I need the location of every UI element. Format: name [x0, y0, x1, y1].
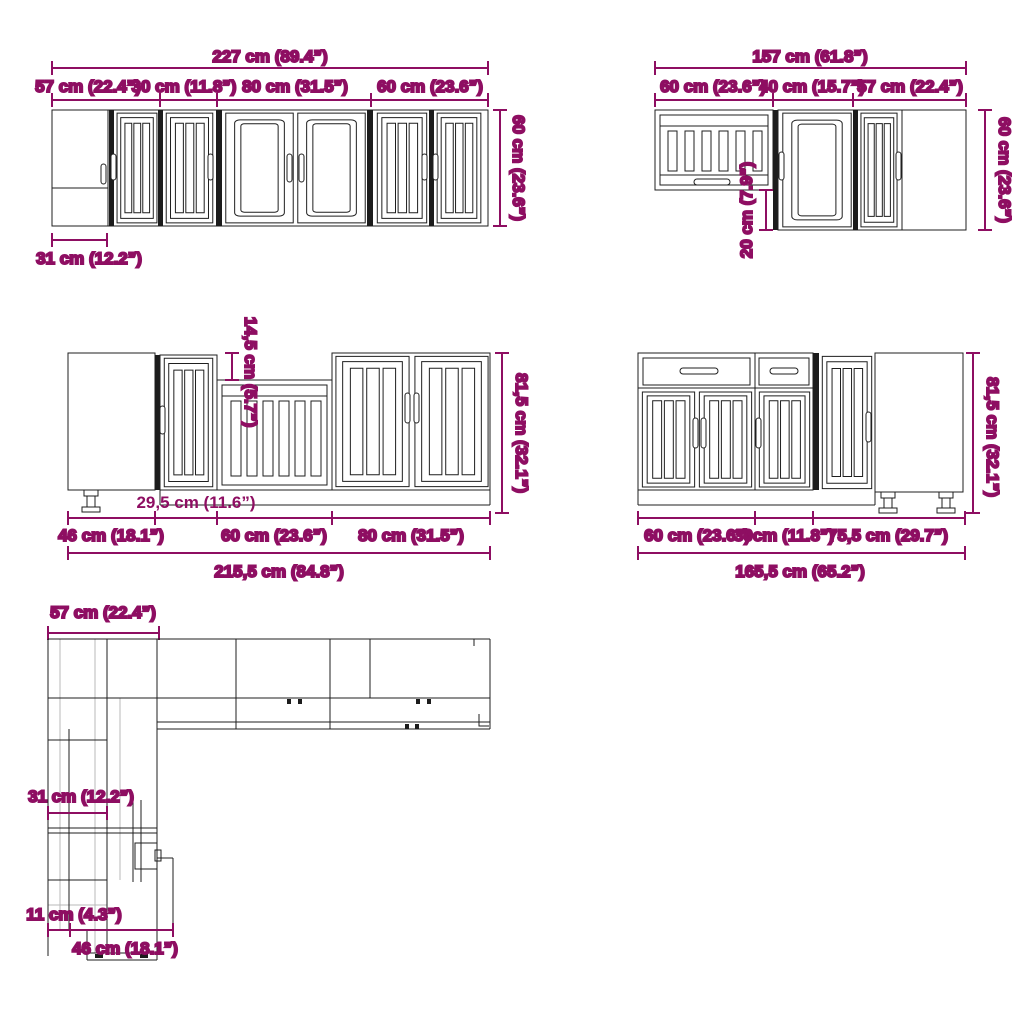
base-run-left-cabinets [68, 353, 490, 512]
dimension-label: 30cm (11.8”) [734, 526, 834, 545]
cabinet-door [298, 113, 365, 223]
drawer-handle [680, 368, 718, 374]
cabinet-leg [879, 492, 897, 513]
dimension-label: 80 cm (31.5”) [242, 77, 348, 96]
dimension-label: 215,5 cm (84.8”) [214, 562, 343, 581]
dimension-label: 46 cm (18.1”) [58, 526, 164, 545]
base-run-right-cabinets [638, 353, 963, 513]
base-run-left-total-dimension: 215,5 cm (84.8”) [68, 546, 490, 581]
door-handle [701, 418, 706, 448]
wall-run-right-height-dimension: 60 cm (23.6”) [978, 110, 1014, 230]
wall-run-left-cabinets [52, 110, 488, 226]
dimension-label: 40 cm (15.7”) [759, 77, 865, 96]
cabinet-door [642, 392, 694, 487]
dimension-label: 80 cm (31.5”) [358, 526, 464, 545]
base-run-left: 14,5 cm (5.7”) 29,5 cm (11.6”) 46 cm (18… [58, 317, 531, 581]
cabinet-door [437, 113, 481, 223]
drawer-handle [770, 368, 798, 374]
door-stile [813, 353, 819, 490]
cabinet-door [861, 113, 897, 227]
door-handle [693, 418, 698, 448]
wall-run-right-total-dimension: 157 cm (61.8”) [655, 47, 966, 75]
dimension-label: 30 cm (11.8”) [132, 77, 237, 96]
door-handle [111, 154, 116, 180]
dimension-label: 165,5 cm (65.2”) [735, 562, 864, 581]
plan-view: 57 cm (22.4”) [26, 603, 490, 960]
filler-panel [773, 110, 778, 230]
base-run-right-total-dimension: 165,5 cm (65.2”) [638, 546, 965, 581]
door-handle [779, 152, 784, 180]
plan-view-bottom-dimensions: 11 cm (4.3”) 46 cm (18.1”) [26, 905, 178, 958]
cabinet-leg [937, 492, 955, 513]
dimension-label: 227 cm (89.4”) [212, 47, 327, 66]
wall-run-left-depth-dimension: 31 cm (12.2”) [36, 233, 142, 268]
dimension-label: 60 cm (23.6”) [509, 115, 528, 221]
kitchen-cabinet-dimension-sheet: 227 cm (89.4”) 57 cm (22.4”) 30 cm (11.8… [0, 0, 1024, 1024]
dimension-label: 11 cm (4.3”) [26, 905, 121, 924]
dimension-label: 57 cm (22.4”) [857, 77, 963, 96]
cabinet-door [783, 113, 851, 227]
cabinet-door [166, 113, 213, 223]
dimension-label: 57 cm (22.4”) [50, 603, 156, 622]
base-run-right-segment-dimensions: 60 cm (23.6”) 30cm (11.8”) 75,5 cm (29.7… [638, 511, 965, 545]
dimension-label: 60 cm (23.6”) [377, 77, 483, 96]
cabinet-door [117, 113, 157, 223]
wall-run-left: 227 cm (89.4”) 57 cm (22.4”) 30 cm (11.8… [35, 47, 528, 268]
door-handle [433, 154, 438, 180]
dimension-label: 60 cm (23.6”) [221, 526, 327, 545]
dimension-label: 81,5 cm (32.1”) [983, 377, 1002, 497]
wall-run-right: 157 cm (61.8”) 60 cm (23.6”) 40 cm (15.7… [655, 47, 1014, 258]
plan-view-depth-dimension: 31 cm (12.2”) [28, 787, 134, 820]
door-handle [299, 154, 304, 182]
plan-view-wall-width-dimension: 57 cm (22.4”) [48, 603, 159, 640]
cabinet-door [699, 392, 751, 487]
door-handle [208, 154, 213, 180]
door-stile [853, 110, 858, 230]
door-handle [414, 393, 419, 423]
cabinet-door [336, 356, 409, 486]
dimension-label: 157 cm (61.8”) [752, 47, 867, 66]
base-run-left-height-dimension: 81,5 cm (32.1”) [495, 353, 531, 513]
wall-run-left-total-dimension: 227 cm (89.4”) [52, 47, 488, 75]
dimension-label: 31 cm (12.2”) [28, 787, 134, 806]
door-handle [866, 412, 871, 442]
sink-unit-width-label: 29,5 cm (11.6”) [136, 493, 255, 512]
door-handle [756, 418, 761, 448]
door-handle [422, 154, 427, 180]
base-run-right-height-dimension: 81,5 cm (32.1”) [966, 353, 1002, 513]
base-run-right: 60 cm (23.6”) 30cm (11.8”) 75,5 cm (29.7… [638, 353, 1002, 581]
door-handle [896, 152, 901, 180]
door-handle [160, 406, 165, 434]
dimension-label: 60 cm (23.6”) [995, 117, 1014, 223]
door-stile [155, 355, 160, 490]
dimension-label: 75,5 cm (29.7”) [828, 526, 948, 545]
dimension-label: 46 cm (18.1”) [72, 939, 178, 958]
wall-run-left-height-dimension: 60 cm (23.6”) [493, 110, 528, 226]
door-stile [367, 110, 373, 226]
wall-run-right-segment-dimensions: 60 cm (23.6”) 40 cm (15.7”) 57 cm (22.4”… [655, 77, 966, 107]
door-stile [216, 110, 222, 226]
door-handle [101, 164, 106, 184]
cabinet-door [164, 358, 212, 486]
cabinet-door [822, 356, 871, 488]
dimension-label: 57 cm (22.4”) [35, 77, 141, 96]
cabinet-leg [82, 490, 100, 512]
dimension-label: 14,5 cm (5.7”) [241, 317, 260, 428]
door-handle [405, 393, 410, 423]
base-run-left-segment-dimensions: 46 cm (18.1”) 60 cm (23.6”) 80 cm (31.5”… [58, 511, 490, 545]
cabinet-door [759, 392, 809, 487]
wall-run-right-cabinets [655, 110, 966, 230]
base-run-left-step-dimension: 14,5 cm (5.7”) [225, 317, 260, 428]
cabinet-door [377, 113, 426, 223]
door-handle [694, 179, 730, 185]
door-handle [287, 154, 292, 182]
cabinet-door [226, 113, 293, 223]
kitchen-cabinet-dimensions-diagram: 227 cm (89.4”) 57 cm (22.4”) 30 cm (11.8… [0, 0, 1024, 1024]
dimension-label: 60 cm (23.6”) [660, 77, 766, 96]
dimension-label: 20 cm (7.9”) [737, 162, 756, 258]
dimension-label: 31 cm (12.2”) [36, 249, 142, 268]
dimension-label: 81,5 cm (32.1”) [512, 373, 531, 493]
cabinet-door [415, 356, 488, 486]
wall-run-left-segment-dimensions: 57 cm (22.4”) 30 cm (11.8”) 80 cm (31.5”… [35, 77, 488, 107]
door-stile [158, 110, 163, 226]
